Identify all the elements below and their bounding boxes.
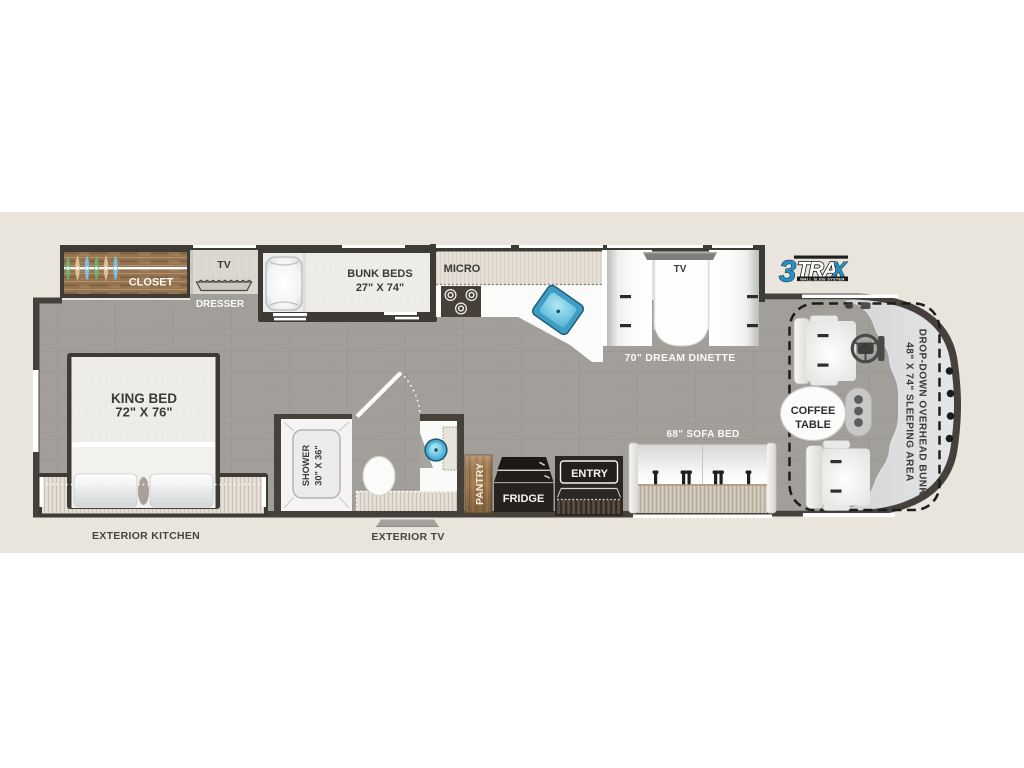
svg-text:TABLE: TABLE — [795, 419, 831, 431]
svg-text:EXTERIOR KITCHEN: EXTERIOR KITCHEN — [92, 530, 200, 542]
svg-text:SHOWER: SHOWER — [301, 444, 311, 486]
svg-text:CLOSET: CLOSET — [129, 277, 174, 289]
svg-text:48" X 74" SLEEPING AREA: 48" X 74" SLEEPING AREA — [904, 342, 915, 482]
svg-text:MICRO: MICRO — [444, 263, 481, 275]
svg-text:WALL SLIDE SYSTEM: WALL SLIDE SYSTEM — [800, 277, 844, 281]
svg-text:ENTRY: ENTRY — [571, 468, 609, 480]
svg-text:DROP-DOWN OVERHEAD BUNK: DROP-DOWN OVERHEAD BUNK — [917, 329, 928, 496]
svg-text:TV: TV — [217, 259, 230, 271]
svg-text:PANTRY: PANTRY — [474, 463, 486, 505]
svg-text:27" X 74": 27" X 74" — [356, 282, 404, 294]
svg-text:EXTERIOR TV: EXTERIOR TV — [371, 531, 444, 543]
svg-text:DRESSER: DRESSER — [196, 299, 245, 310]
svg-text:BUNK BEDS: BUNK BEDS — [347, 268, 412, 280]
svg-text:68" SOFA BED: 68" SOFA BED — [667, 429, 740, 440]
svg-text:FRIDGE: FRIDGE — [503, 493, 545, 505]
svg-text:TV: TV — [674, 264, 687, 275]
svg-text:3: 3 — [779, 254, 796, 289]
svg-text:70" DREAM DINETTE: 70" DREAM DINETTE — [624, 352, 735, 364]
svg-text:COFFEE: COFFEE — [791, 405, 836, 417]
svg-text:30" X 36": 30" X 36" — [314, 445, 324, 485]
svg-text:72" X 76": 72" X 76" — [115, 405, 172, 420]
